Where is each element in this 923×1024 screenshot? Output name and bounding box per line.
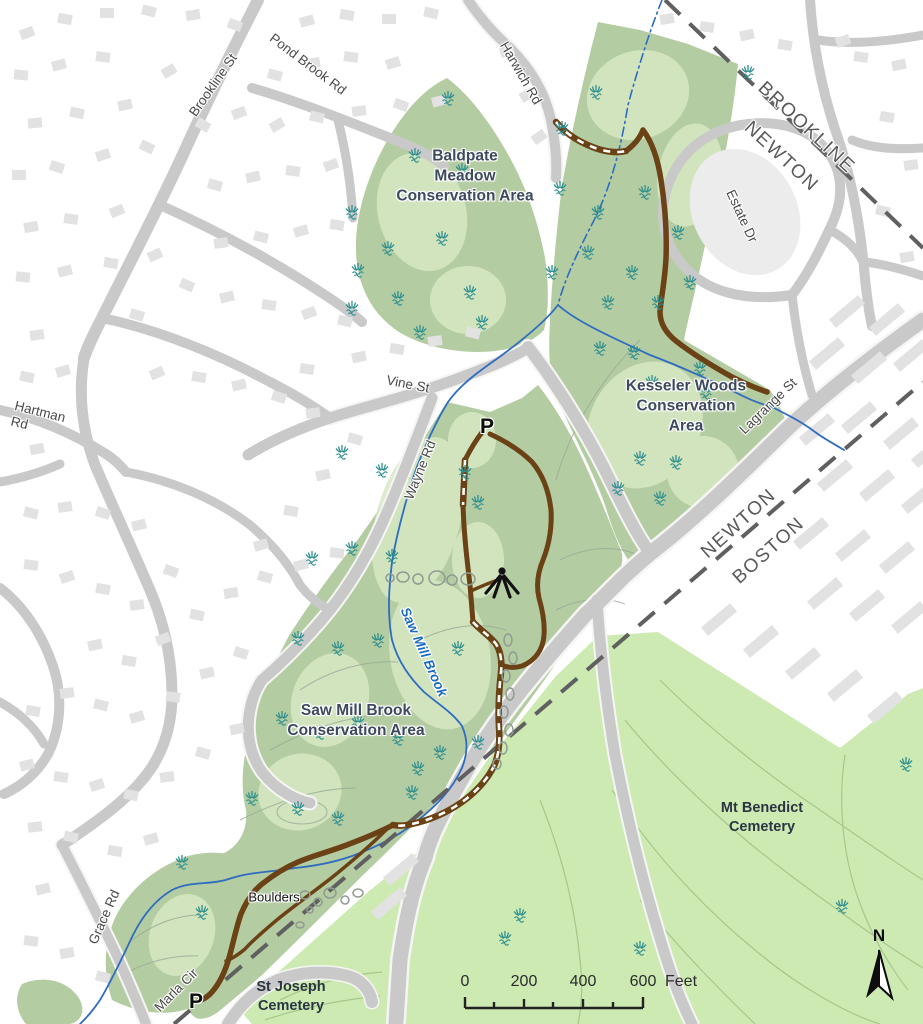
building: [23, 221, 39, 233]
building: [253, 230, 269, 243]
scale-tick-200: 200: [511, 973, 538, 991]
building: [19, 371, 35, 384]
area-label-baldpate: Baldpate Meadow Conservation Area: [396, 146, 533, 205]
poi-label-boulders: Boulders: [248, 890, 299, 905]
apartment-building: [807, 577, 843, 610]
parking-icon: P: [189, 990, 203, 1014]
area-label-sawmill: Saw Mill Brook Conservation Area: [287, 701, 424, 741]
building: [389, 343, 405, 355]
building: [903, 159, 918, 171]
sawmill-line1: Saw Mill Brook: [287, 701, 424, 721]
building: [23, 935, 38, 947]
grass-marsh-icon: [306, 551, 318, 565]
building: [57, 264, 73, 277]
building: [427, 335, 442, 347]
grass-marsh-icon: [336, 445, 348, 459]
boulder-icon: [341, 896, 349, 904]
building: [129, 308, 145, 321]
building: [141, 4, 157, 17]
building: [213, 237, 228, 249]
building: [879, 111, 895, 123]
building: [63, 213, 78, 225]
building: [160, 63, 177, 79]
building: [385, 56, 401, 70]
apartment-building: [883, 417, 919, 450]
building: [301, 306, 318, 320]
boulder-icon: [353, 889, 363, 897]
building: [393, 98, 410, 112]
apartment-building: [835, 529, 871, 562]
sawmill-line2: Conservation Area: [287, 721, 424, 741]
building: [351, 351, 367, 364]
building: [777, 39, 793, 51]
building: [57, 501, 72, 513]
building: [59, 570, 75, 584]
apartment-building: [785, 647, 821, 680]
building: [28, 117, 43, 128]
building: [14, 69, 29, 80]
trail-map: Brookline St Pond Brook Rd Harwich Rd Es…: [0, 0, 923, 1024]
building: [29, 329, 44, 341]
building: [129, 599, 144, 611]
building: [95, 51, 110, 63]
building: [299, 14, 315, 27]
grass-marsh-icon: [376, 463, 388, 477]
building: [261, 299, 276, 311]
building: [315, 469, 331, 482]
north-label: N: [873, 926, 885, 946]
building: [207, 178, 223, 191]
building: [853, 51, 868, 63]
building: [59, 947, 75, 959]
building: [191, 371, 207, 383]
building: [149, 366, 166, 381]
baldpate-line2: Meadow: [396, 166, 533, 186]
building: [382, 14, 396, 24]
building: [223, 587, 239, 599]
building: [100, 8, 114, 18]
building: [143, 832, 159, 845]
scale-unit: Feet: [665, 973, 697, 991]
building: [89, 778, 105, 792]
apartment-building: [841, 401, 877, 434]
building: [347, 432, 363, 445]
scale-tick-400: 400: [570, 973, 597, 991]
apartment-building: [817, 459, 853, 492]
scale-tick-600: 600: [630, 973, 657, 991]
building: [103, 257, 119, 269]
building: [117, 99, 133, 112]
building: [121, 655, 137, 667]
building: [659, 13, 675, 25]
kesseler-line1: Kesseler Woods: [626, 376, 746, 396]
mt-benedict-line1: Mt Benedict: [721, 799, 803, 818]
building: [231, 379, 247, 392]
building: [129, 710, 145, 723]
kesseler-line3: Area: [626, 416, 746, 436]
building: [253, 538, 269, 551]
st-joseph-line1: St Joseph: [256, 978, 325, 997]
building: [351, 105, 366, 117]
building: [283, 505, 299, 517]
building: [699, 21, 714, 33]
building: [19, 26, 36, 40]
building: [179, 278, 196, 293]
building: [163, 564, 180, 578]
kesseler-line2: Conservation: [626, 396, 746, 416]
building: [423, 7, 439, 20]
parking-icon: P: [480, 415, 494, 439]
apartment-building: [701, 603, 737, 636]
building: [199, 667, 215, 680]
building: [131, 518, 147, 531]
building: [69, 107, 85, 120]
apartment-building: [879, 541, 915, 574]
baldpate-line3: Conservation Area: [396, 186, 533, 206]
building: [219, 290, 235, 303]
building: [233, 646, 249, 660]
building: [16, 271, 31, 282]
building: [139, 140, 156, 155]
building: [285, 165, 300, 177]
building: [343, 51, 358, 63]
building: [28, 821, 43, 832]
building: [305, 407, 320, 419]
apartment-building: [901, 481, 923, 514]
building: [530, 129, 547, 145]
area-label-kesseler: Kesseler Woods Conservation Area: [626, 376, 746, 435]
building: [23, 559, 38, 571]
building: [55, 364, 71, 377]
building: [189, 609, 205, 622]
apartment-building: [849, 589, 885, 622]
building: [195, 746, 211, 759]
apartment-building: [809, 337, 845, 370]
building: [59, 687, 74, 699]
apartment-building: [827, 669, 863, 702]
building: [267, 68, 283, 81]
apartment-building: [829, 295, 865, 328]
building: [891, 59, 907, 72]
building: [53, 771, 68, 783]
baldpate-line1: Baldpate: [396, 146, 533, 166]
building: [323, 158, 340, 172]
st-joseph-line2: Cemetery: [256, 997, 325, 1016]
building: [51, 58, 67, 71]
building: [49, 160, 65, 174]
apartment-building: [911, 435, 923, 468]
area-label-st-joseph: St Joseph Cemetery: [256, 978, 325, 1016]
building: [245, 171, 261, 184]
scale-tick-0: 0: [461, 973, 470, 991]
building: [165, 691, 180, 703]
building: [93, 698, 109, 711]
building: [231, 106, 248, 120]
building: [107, 845, 123, 857]
building: [268, 117, 285, 133]
building: [185, 9, 201, 21]
building: [95, 583, 111, 595]
building: [12, 170, 26, 180]
area-label-mt-benedict: Mt Benedict Cemetery: [721, 799, 803, 837]
apartment-building: [891, 601, 923, 634]
building: [159, 771, 174, 783]
building: [25, 705, 41, 717]
building: [329, 219, 345, 231]
building: [329, 547, 344, 559]
building: [95, 148, 111, 162]
building: [109, 204, 126, 219]
building: [147, 248, 164, 263]
mt-benedict-line2: Cemetery: [721, 818, 803, 837]
apartment-building: [859, 469, 895, 502]
building: [23, 506, 39, 519]
building: [29, 443, 45, 455]
building: [257, 570, 273, 583]
building: [87, 639, 103, 652]
building: [899, 251, 915, 263]
apartment-building: [743, 625, 779, 658]
building: [57, 13, 73, 25]
building: [339, 9, 355, 21]
building: [739, 29, 755, 42]
building: [299, 363, 314, 375]
building: [35, 882, 51, 895]
building: [293, 224, 309, 237]
